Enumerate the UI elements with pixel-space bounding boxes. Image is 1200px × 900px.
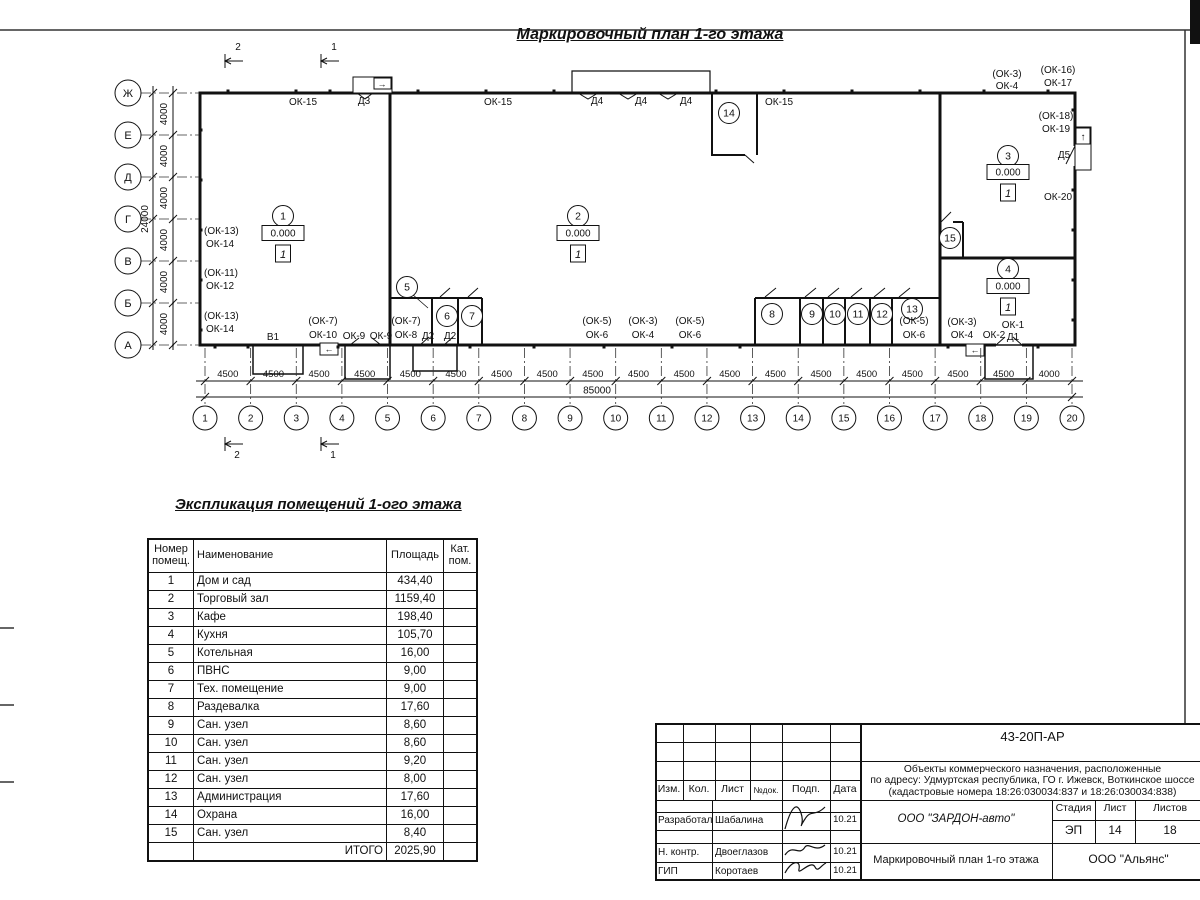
- explication-header: Номер помещ.НаименованиеПлощадьКат. пом.: [148, 539, 477, 573]
- plan-label: 1: [330, 450, 336, 461]
- axis-label: 14: [793, 414, 805, 425]
- dim-label: 4500: [628, 369, 649, 380]
- sign-name: Коротаев: [715, 866, 781, 877]
- window-mark: [533, 346, 536, 349]
- table-cell: [444, 717, 478, 735]
- sheets-value: 18: [1135, 824, 1200, 837]
- col-izm: Изм.: [655, 784, 683, 796]
- room-number: 8: [769, 309, 775, 321]
- dim-label: 4000: [159, 312, 170, 335]
- table-row: 10Сан. узел8,60: [148, 735, 477, 753]
- sign-date: 10.21: [830, 866, 860, 876]
- company-name: ООО "ЗАРДОН-авто": [860, 813, 1052, 826]
- window-mark: [200, 179, 203, 182]
- plan-label: ОК-12: [206, 281, 234, 292]
- table-cell: [444, 609, 478, 627]
- axis-label: 7: [476, 414, 482, 425]
- dim-label: 4500: [947, 369, 968, 380]
- dim-label: 4500: [354, 369, 375, 380]
- table-row: 9Сан. узел8,60: [148, 717, 477, 735]
- window-mark: [947, 346, 950, 349]
- window-mark: [1072, 319, 1075, 322]
- table-cell: [444, 645, 478, 663]
- table-row: 11Сан. узел9,20: [148, 753, 477, 771]
- title-block-line: [655, 800, 1200, 801]
- axis-label: 19: [1021, 414, 1033, 425]
- plan-label: ←: [325, 344, 334, 354]
- window-mark: [1072, 279, 1075, 282]
- table-cell: 8,40: [387, 825, 444, 843]
- plan-label: Д2: [444, 331, 457, 342]
- title-block-line: [655, 761, 1200, 762]
- axis-label: 16: [884, 414, 896, 425]
- axis-label: А: [124, 340, 132, 352]
- table-cell: Охрана: [194, 807, 387, 825]
- dim-label: 4500: [491, 369, 512, 380]
- plan-label: ОК-2: [983, 330, 1006, 341]
- table-row: 15Сан. узел8,40: [148, 825, 477, 843]
- axis-label: Д: [124, 172, 132, 184]
- table-cell: [444, 771, 478, 789]
- plan-label: ОК-10: [309, 330, 337, 341]
- explication-body: 1Дом и сад434,402Торговый зал1159,403Каф…: [148, 573, 477, 862]
- plan-label: Д4: [591, 96, 604, 107]
- table-cell: Кухня: [194, 627, 387, 645]
- table-cell: 9: [148, 717, 194, 735]
- window-mark: [200, 129, 203, 132]
- table-cell: Сан. узел: [194, 735, 387, 753]
- plan-label: ↑: [1081, 132, 1086, 143]
- room-number: 9: [809, 309, 815, 321]
- window-mark: [715, 90, 718, 93]
- axis-label: В: [124, 256, 131, 268]
- table-cell: 8,60: [387, 717, 444, 735]
- table-row: 3Кафе198,40: [148, 609, 477, 627]
- axis-label: 1: [202, 414, 208, 425]
- table-cell: Раздевалка: [194, 699, 387, 717]
- axis-label: Б: [124, 298, 131, 310]
- table-cell: 1: [148, 573, 194, 591]
- table-cell: [444, 807, 478, 825]
- window-mark: [247, 346, 250, 349]
- axis-label: 20: [1066, 414, 1078, 425]
- sheet-value: 14: [1095, 824, 1135, 837]
- signature-icon: [781, 799, 829, 835]
- room-number: 14: [723, 108, 735, 120]
- table-row: 7Тех. помещение9,00: [148, 681, 477, 699]
- window-mark: [214, 346, 217, 349]
- plan-label: ОК-20: [1044, 192, 1072, 203]
- dim-label: 4500: [582, 369, 603, 380]
- axis-label: 10: [610, 414, 622, 425]
- dim-label: 4000: [159, 270, 170, 293]
- plan-label: ←: [971, 345, 980, 355]
- window-mark: [1037, 346, 1040, 349]
- window-mark: [553, 90, 556, 93]
- table-cell: 2: [148, 591, 194, 609]
- table-cell: Дом и сад: [194, 573, 387, 591]
- table-cell: [444, 789, 478, 807]
- title-block-line: [712, 800, 713, 881]
- table-cell: 8: [148, 699, 194, 717]
- window-mark: [739, 346, 742, 349]
- table-cell: [444, 663, 478, 681]
- table-cell: 14: [148, 807, 194, 825]
- axis-label: 11: [656, 414, 667, 425]
- table-row: 2Торговый зал1159,40: [148, 591, 477, 609]
- table-cell: 6: [148, 663, 194, 681]
- axis-label: 8: [522, 414, 528, 425]
- dim-label: 4500: [993, 369, 1014, 380]
- explication-title: Экспликация помещений 1-ого этажа: [175, 496, 462, 513]
- plan-label: (ОК-11): [204, 268, 238, 279]
- room-number: 12: [876, 309, 888, 321]
- table-cell: 16,00: [387, 645, 444, 663]
- table-cell: [444, 627, 478, 645]
- plan-label: В1: [267, 332, 280, 343]
- plan-label: ОК-15: [289, 97, 317, 108]
- floor-number: 1: [1005, 188, 1011, 200]
- plan-label: (ОК-7): [308, 316, 337, 327]
- table-row: 12Сан. узел8,00: [148, 771, 477, 789]
- window-mark: [200, 279, 203, 282]
- dim-label: 4500: [719, 369, 740, 380]
- room-number: 10: [829, 309, 841, 321]
- plan-label: (ОК-5): [582, 316, 611, 327]
- table-row: 6ПВНС9,00: [148, 663, 477, 681]
- sign-role: ГИП: [658, 866, 712, 877]
- stage-label: Стадия: [1052, 803, 1095, 815]
- plan-label: Д1: [1007, 332, 1020, 343]
- col-data: Дата: [830, 784, 860, 796]
- col-kol: Кол.: [683, 784, 715, 796]
- table-cell: [444, 699, 478, 717]
- axis-label: 18: [975, 414, 987, 425]
- dim-label: 4500: [400, 369, 421, 380]
- table-cell: 17,60: [387, 789, 444, 807]
- room-number: 3: [1005, 151, 1011, 163]
- table-cell: [444, 681, 478, 699]
- axis-label: 6: [430, 414, 436, 425]
- room-number: 15: [944, 233, 956, 245]
- sign-name: Двоеглазов: [715, 847, 781, 858]
- table-cell: [444, 591, 478, 609]
- table-cell: Торговый зал: [194, 591, 387, 609]
- table-cell: 11: [148, 753, 194, 771]
- table-cell: 13: [148, 789, 194, 807]
- table-cell: Сан. узел: [194, 825, 387, 843]
- window-mark: [329, 90, 332, 93]
- window-mark: [983, 90, 986, 93]
- plan-label: ОК-4: [951, 330, 974, 341]
- dim-label: 4500: [263, 369, 284, 380]
- room-number: 13: [906, 304, 918, 316]
- contractor-name: ООО "Альянс": [1052, 853, 1200, 866]
- table-cell: 8,00: [387, 771, 444, 789]
- plan-label: ОК-4: [632, 330, 655, 341]
- axis-label: 4: [339, 414, 345, 425]
- window-mark: [200, 329, 203, 332]
- dim-total: 24000: [140, 205, 151, 233]
- dim-label: 4500: [537, 369, 558, 380]
- plan-label: ОК-19: [1042, 124, 1070, 135]
- room-number: 5: [404, 282, 410, 294]
- signature-icon: [781, 857, 829, 879]
- window-mark: [417, 90, 420, 93]
- axis-label: Ж: [123, 88, 133, 100]
- plan-label: (ОК-3): [628, 316, 657, 327]
- axis-label: Г: [125, 214, 131, 226]
- floor-number: 1: [280, 249, 286, 261]
- plan-label: ОК-14: [206, 239, 234, 250]
- col-podp: Подп.: [782, 784, 830, 796]
- plan-label: (ОК-13): [204, 226, 239, 237]
- table-cell: [444, 735, 478, 753]
- table-cell: 3: [148, 609, 194, 627]
- axis-label: 9: [567, 414, 573, 425]
- dim-label: 4500: [445, 369, 466, 380]
- axis-label: 3: [293, 414, 299, 425]
- plan-label: Д4: [635, 96, 648, 107]
- window-mark: [851, 90, 854, 93]
- dim-label: 4500: [902, 369, 923, 380]
- window-mark: [783, 90, 786, 93]
- elevation-value: 0.000: [995, 168, 1020, 179]
- table-cell: 9,20: [387, 753, 444, 771]
- table-cell: 9,00: [387, 663, 444, 681]
- sign-role: Разработал: [658, 815, 712, 826]
- title-block: 43-20П-АР Объекты коммерческого назначен…: [655, 723, 1200, 881]
- desc-line: (кадастровые номера 18:26:030034:837 и 1…: [862, 787, 1200, 798]
- window-mark: [227, 90, 230, 93]
- col-list: Лист: [715, 784, 750, 796]
- plan-labels: ОК-15Д3ОК-15Д4Д4Д4ОК-15(ОК-3)ОК-4(ОК-16)…: [204, 42, 1086, 461]
- table-cell: [148, 843, 194, 862]
- floor-number: 1: [575, 249, 581, 261]
- drawing-title: Маркировочный план 1-го этажа: [860, 854, 1052, 866]
- dim-label: 4500: [309, 369, 330, 380]
- window-mark: [919, 90, 922, 93]
- table-cell: Администрация: [194, 789, 387, 807]
- plan-label: 2: [235, 42, 241, 53]
- room-number: 2: [575, 211, 581, 223]
- stage-value: ЭП: [1052, 824, 1095, 837]
- plan-label: (ОК-5): [899, 316, 928, 327]
- table-cell: 16,00: [387, 807, 444, 825]
- table-cell: Тех. помещение: [194, 681, 387, 699]
- plan-label: (ОК-7): [391, 316, 420, 327]
- room-number: 1: [280, 211, 286, 223]
- table-cell: Сан. узел: [194, 717, 387, 735]
- title-block-line: [655, 843, 1200, 844]
- plan-label: (ОК-13): [204, 311, 239, 322]
- sheets-label: Листов: [1135, 803, 1200, 815]
- window-mark: [603, 346, 606, 349]
- window-mark: [469, 346, 472, 349]
- table-cell: [444, 573, 478, 591]
- table-row: 5Котельная16,00: [148, 645, 477, 663]
- table-cell: 1159,40: [387, 591, 444, 609]
- window-mark: [1047, 90, 1050, 93]
- explication-table: Номер помещ.НаименованиеПлощадьКат. пом.…: [147, 538, 478, 862]
- dim-label: 4500: [810, 369, 831, 380]
- plan-label: ОК-8: [395, 330, 418, 341]
- dim-label: 4000: [159, 228, 170, 251]
- table-cell: Котельная: [194, 645, 387, 663]
- sheet-label: Лист: [1095, 803, 1135, 815]
- table-cell: 17,60: [387, 699, 444, 717]
- walls-group: [200, 93, 1075, 345]
- room-number: 6: [444, 311, 450, 323]
- window-mark: [671, 346, 674, 349]
- table-row: 8Раздевалка17,60: [148, 699, 477, 717]
- desc-line: Объекты коммерческого назначения, распол…: [862, 764, 1200, 775]
- room-number: 7: [469, 311, 475, 323]
- wall-window-marks: [200, 90, 1075, 349]
- sheet-corner-mark: [1190, 0, 1200, 44]
- plan-label: ОК-15: [765, 97, 793, 108]
- plan-label: (ОК-5): [675, 316, 704, 327]
- table-cell: Кафе: [194, 609, 387, 627]
- table-cell: 105,70: [387, 627, 444, 645]
- plan-label: Д3: [358, 96, 371, 107]
- floor-number: 1: [1005, 302, 1011, 314]
- axis-label: 5: [385, 414, 391, 425]
- dim-total: 85000: [583, 386, 611, 397]
- axis-label: 13: [747, 414, 759, 425]
- title-block-line: [655, 879, 1200, 881]
- plan-label: ОК-1: [1002, 320, 1025, 331]
- table-cell: 8,60: [387, 735, 444, 753]
- plan-label: 1: [331, 42, 337, 53]
- doc-number: 43-20П-АР: [860, 730, 1200, 744]
- title-block-line: [655, 723, 657, 881]
- plan-label: (ОК-3): [947, 317, 976, 328]
- sign-date: 10.21: [830, 815, 860, 825]
- table-row: 14Охрана16,00: [148, 807, 477, 825]
- dim-label: 4500: [856, 369, 877, 380]
- desc-line: по адресу: Удмуртская республика, ГО г. …: [862, 775, 1200, 786]
- table-cell: Сан. узел: [194, 771, 387, 789]
- dim-label: 4000: [1039, 369, 1060, 380]
- explication-col-header: Кат. пом.: [444, 539, 478, 573]
- axis-label: 15: [838, 414, 850, 425]
- col-ndok: №док.: [750, 786, 782, 795]
- plan-label: ОК-9: [343, 331, 366, 342]
- plan-label: ОК-6: [679, 330, 702, 341]
- dim-label: 4000: [159, 186, 170, 209]
- explication-col-header: Наименование: [194, 539, 387, 573]
- table-cell: 434,40: [387, 573, 444, 591]
- explication-col-header: Площадь: [387, 539, 444, 573]
- window-mark: [337, 346, 340, 349]
- table-cell: 4: [148, 627, 194, 645]
- window-mark: [485, 90, 488, 93]
- table-cell: Сан. узел: [194, 753, 387, 771]
- table-row: 4Кухня105,70: [148, 627, 477, 645]
- plan-label: ОК-4: [996, 81, 1019, 92]
- plan-label: 2: [234, 450, 240, 461]
- table-cell: 9,00: [387, 681, 444, 699]
- table-cell: 10: [148, 735, 194, 753]
- table-cell: [444, 843, 478, 862]
- plan-label: (ОК-18): [1039, 111, 1074, 122]
- elevation-value: 0.000: [565, 229, 590, 240]
- plan-label: →: [378, 79, 387, 89]
- table-cell: 12: [148, 771, 194, 789]
- table-cell: [444, 753, 478, 771]
- window-mark: [295, 90, 298, 93]
- room-markers: 1234567891011121314150.00010.00010.00010…: [262, 103, 1029, 327]
- drawing-sheet: { "title": "Маркировочный план 1-го этаж…: [0, 0, 1200, 900]
- table-cell: 2025,90: [387, 843, 444, 862]
- plan-label: Д4: [680, 96, 693, 107]
- title-block-line: [655, 723, 1200, 725]
- table-cell: 15: [148, 825, 194, 843]
- plan-label: ОК-15: [484, 97, 512, 108]
- plan-label: ОК-6: [586, 330, 609, 341]
- table-cell: 5: [148, 645, 194, 663]
- dim-label: 4500: [765, 369, 786, 380]
- window-mark: [1072, 229, 1075, 232]
- plan-label: (ОК-3): [992, 69, 1021, 80]
- table-cell: ПВНС: [194, 663, 387, 681]
- explication-col-header: Номер помещ.: [148, 539, 194, 573]
- dim-label: 4000: [159, 102, 170, 125]
- page-title: Маркировочный план 1-го этажа: [400, 26, 900, 44]
- dim-label: 4000: [159, 144, 170, 167]
- dim-label: 4500: [217, 369, 238, 380]
- table-cell: 7: [148, 681, 194, 699]
- table-cell: ИТОГО: [194, 843, 387, 862]
- table-row: 1Дом и сад434,40: [148, 573, 477, 591]
- window-mark: [200, 229, 203, 232]
- table-row: ИТОГО2025,90: [148, 843, 477, 862]
- plan-label: ОК-6: [903, 330, 926, 341]
- room-number: 11: [853, 309, 864, 321]
- plan-label: Д2: [422, 331, 435, 342]
- elevation-value: 0.000: [995, 282, 1020, 293]
- project-description: Объекты коммерческого назначения, распол…: [862, 764, 1200, 798]
- title-block-line: [1052, 820, 1200, 821]
- sign-date: 10.21: [830, 847, 860, 857]
- axis-label: Е: [124, 130, 131, 142]
- axis-label: 2: [248, 414, 254, 425]
- plan-label: (ОК-16): [1041, 65, 1076, 76]
- table-cell: [444, 825, 478, 843]
- table-cell: 198,40: [387, 609, 444, 627]
- plan-label: ОК-9: [370, 331, 393, 342]
- plan-label: ОК-14: [206, 324, 234, 335]
- sign-role: Н. контр.: [658, 847, 712, 858]
- plan-label: Д5: [1058, 150, 1071, 161]
- table-row: 13Администрация17,60: [148, 789, 477, 807]
- dim-label: 4500: [674, 369, 695, 380]
- room-number: 4: [1005, 264, 1011, 276]
- sign-name: Шабалина: [715, 815, 781, 826]
- axis-label: 17: [930, 414, 942, 425]
- plan-label: ОК-17: [1044, 78, 1072, 89]
- elevation-value: 0.000: [270, 229, 295, 240]
- axis-label: 12: [701, 414, 713, 425]
